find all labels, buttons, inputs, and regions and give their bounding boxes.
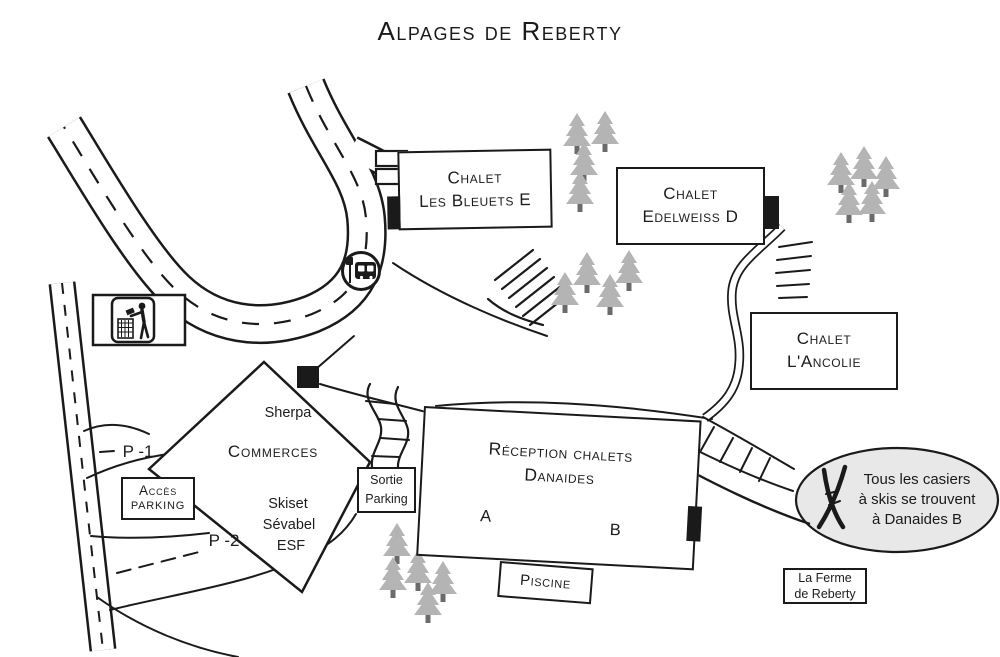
bus-stop-icon <box>343 253 380 290</box>
annex-box <box>376 151 407 166</box>
map-drawing <box>0 0 1000 657</box>
trash-icon <box>93 295 185 345</box>
chalet-footpath <box>705 227 782 418</box>
tree-cluster-bottom <box>379 523 457 623</box>
annex-box <box>376 169 407 184</box>
building-marker <box>297 366 319 388</box>
stairs-to-bubble <box>688 417 794 491</box>
tree-cluster-top <box>563 111 619 212</box>
tree-cluster-middle <box>551 250 643 315</box>
bubble-arrow <box>668 459 810 524</box>
commerces-building <box>149 362 370 592</box>
parking-exit-ramp <box>366 384 409 468</box>
stairs-edelweiss <box>776 242 812 298</box>
callout-bubble <box>796 448 998 552</box>
resort-map: Alpages de Reberty Chalet Les Bleuets E … <box>0 0 1000 657</box>
road-main-hairpin <box>62 86 402 650</box>
slope-hatching <box>488 250 568 325</box>
tree-cluster-top-right <box>827 146 900 223</box>
